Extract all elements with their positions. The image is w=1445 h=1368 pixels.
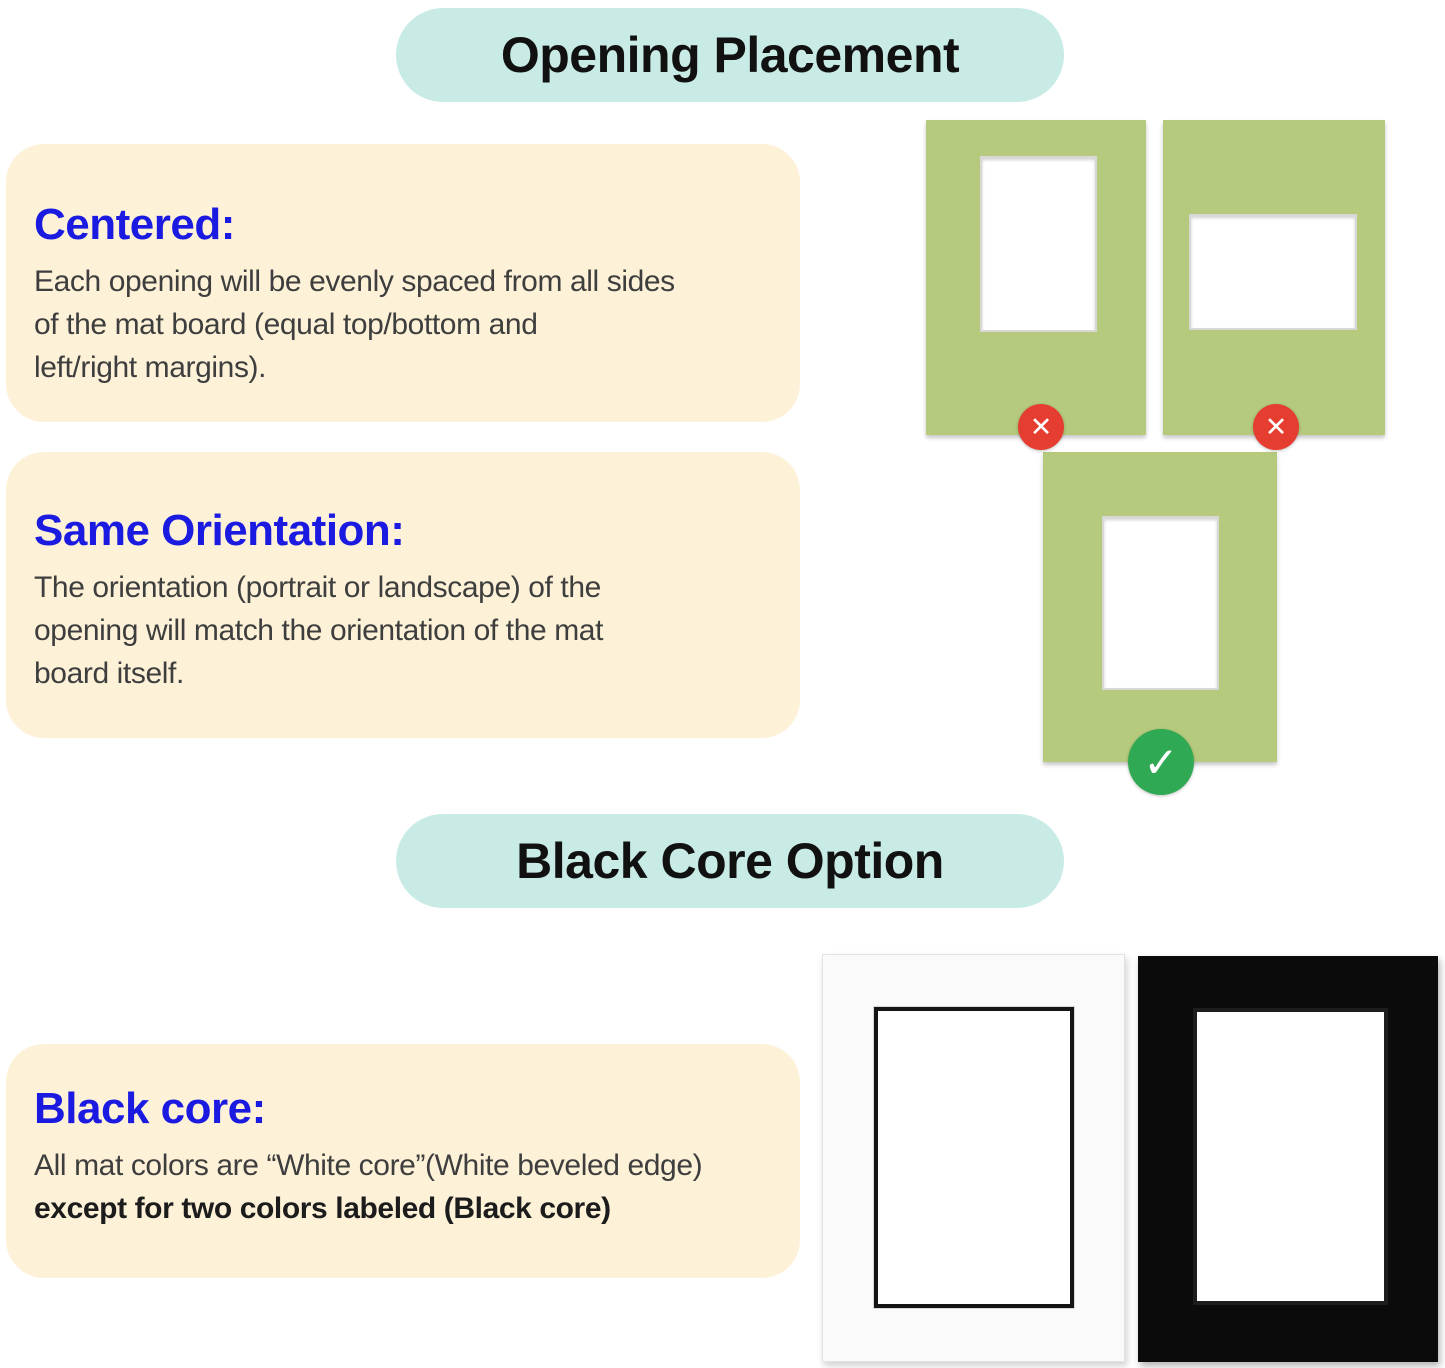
mat-example-wrong-orientation-opening	[1163, 120, 1385, 435]
opening-placement-title: Opening Placement	[501, 26, 959, 84]
black-mat-example	[1138, 956, 1438, 1362]
mat-opening	[1102, 516, 1219, 690]
white-mat-black-core-example	[822, 954, 1125, 1362]
same-orientation-note-card: Same Orientation: The orientation (portr…	[6, 452, 800, 738]
mat-example-offcenter-opening	[926, 120, 1146, 435]
centered-note-card: Centered: Each opening will be evenly sp…	[6, 144, 800, 422]
correct-check-icon: ✓	[1128, 729, 1194, 795]
same-orientation-heading: Same Orientation:	[34, 506, 786, 556]
same-orientation-body-text: The orientation (portrait or landscape) …	[34, 566, 786, 695]
x-glyph: ✕	[1265, 412, 1288, 443]
opening-placement-header-pill: Opening Placement	[396, 8, 1064, 102]
black-mat-opening	[1193, 1008, 1388, 1305]
mat-example-centered-opening	[1043, 452, 1277, 762]
mat-opening	[980, 156, 1097, 332]
wrong-x-icon: ✕	[1018, 404, 1064, 450]
wrong-x-icon: ✕	[1253, 404, 1299, 450]
black-core-body-bold: except for two colors labeled (Black cor…	[34, 1187, 786, 1230]
centered-body-text: Each opening will be evenly spaced from …	[34, 260, 786, 389]
x-glyph: ✕	[1030, 412, 1053, 443]
black-core-note-card: Black core: All mat colors are “White co…	[6, 1044, 800, 1278]
black-core-title: Black Core Option	[516, 832, 944, 890]
matboard-infographic: Opening Placement Centered: Each opening…	[0, 0, 1445, 1368]
centered-heading: Centered:	[34, 200, 786, 250]
black-core-body-regular: All mat colors are “White core”(White be…	[34, 1144, 786, 1187]
black-core-beveled-opening	[874, 1007, 1074, 1308]
black-core-header-pill: Black Core Option	[396, 814, 1064, 908]
check-glyph: ✓	[1143, 738, 1178, 787]
black-core-heading: Black core:	[34, 1084, 786, 1134]
mat-opening	[1189, 214, 1357, 330]
